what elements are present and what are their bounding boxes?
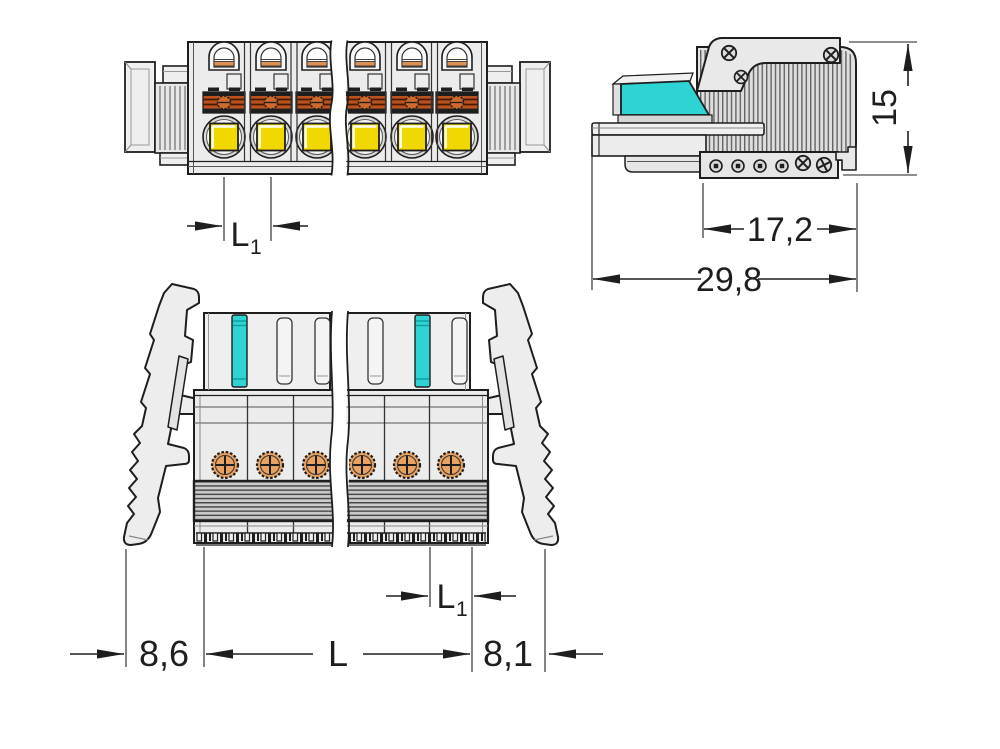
- dimension-label-total-depth: 29,8: [696, 261, 762, 299]
- dimension-label-pitch-bottom-sub: 1: [456, 598, 468, 621]
- dimension-label-length: L: [328, 633, 348, 674]
- pin-rail: [592, 123, 764, 135]
- pole: [250, 42, 292, 158]
- pole: [436, 42, 478, 158]
- pole: [391, 42, 433, 158]
- break-lines-front: [330, 41, 349, 176]
- locking-lever-left: [124, 284, 199, 545]
- screw-icon: [824, 48, 838, 62]
- dimension-pitch-top: L 1: [187, 177, 308, 259]
- dimension-label-pitch-top-sub: 1: [250, 236, 262, 259]
- dimension-label-height: 15: [866, 89, 904, 127]
- coding-channel-cyan: [415, 315, 430, 387]
- dimension-label-pitch-bottom: L: [437, 578, 456, 616]
- contact: [438, 452, 464, 478]
- front-view: L 1: [125, 41, 550, 260]
- dimension-length-row: 8,6 L 8,1: [70, 547, 603, 674]
- locking-lever-right: [483, 284, 558, 545]
- rivet-icon: [710, 160, 722, 172]
- coding-channel: [452, 318, 467, 384]
- dimension-label-left-margin: 8,6: [139, 633, 189, 674]
- screw-icon: [722, 46, 736, 60]
- contact: [212, 452, 238, 478]
- dimension-label-pitch-top: L: [231, 216, 250, 254]
- pole: [203, 42, 245, 158]
- coding-channel: [277, 318, 292, 384]
- pole: [344, 42, 386, 158]
- rivet-icon: [732, 160, 744, 172]
- screw-icon: [796, 156, 810, 170]
- contact: [394, 452, 420, 478]
- break-lines-bottom: [330, 311, 349, 547]
- dimension-label-insert-depth: 17,2: [747, 211, 813, 249]
- mounting-flange-right: [487, 62, 550, 165]
- screw-icon: [735, 71, 748, 84]
- coding-lever-cyan: [621, 81, 709, 115]
- contact: [303, 452, 329, 478]
- contact: [257, 452, 283, 478]
- dimension-label-right-margin: 8,1: [483, 633, 533, 674]
- mating-face-left: [204, 313, 330, 390]
- bottom-view: L 1 8,6 L 8,1: [70, 284, 603, 674]
- rivet-icon: [776, 160, 788, 172]
- side-view: 15 17,2 29,8: [592, 38, 917, 299]
- coding-channel-cyan: [232, 315, 247, 387]
- technical-drawing-page: L 1: [0, 0, 1000, 749]
- mounting-flange-left: [125, 62, 188, 165]
- coding-channel: [368, 318, 383, 384]
- contact: [349, 452, 375, 478]
- connector-technical-drawing: L 1: [0, 0, 1000, 749]
- coding-channel: [315, 318, 330, 384]
- rivet-icon: [754, 160, 766, 172]
- mating-face-right: [344, 313, 470, 390]
